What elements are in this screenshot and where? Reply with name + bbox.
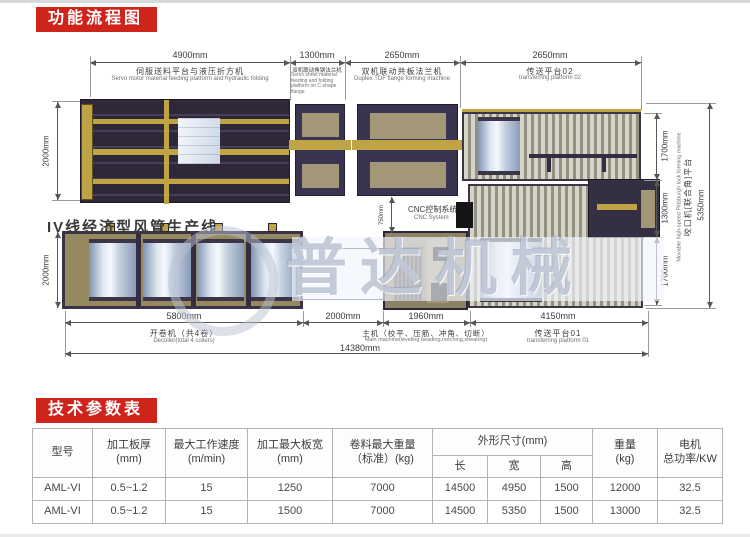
table-cell: AML-VI xyxy=(33,501,93,524)
dim-14380-label: 14380mm xyxy=(340,343,380,353)
table-cell: 7000 xyxy=(333,478,433,501)
header-width: 加工最大板宽 (mm) xyxy=(248,429,333,478)
roller-bar xyxy=(289,140,351,150)
dim-1300-right-label: 1300mm xyxy=(661,192,670,223)
cnc-system-en: CNC System xyxy=(414,215,449,221)
table-cell: 13000 xyxy=(593,501,658,524)
dim-4900-label: 4900mm xyxy=(172,50,207,60)
flow-chart-banner: 功能流程图 xyxy=(36,7,157,32)
block xyxy=(302,113,339,137)
dim-2000-gap-label: 2000mm xyxy=(325,311,360,321)
dim-2650a-label: 2650mm xyxy=(384,50,419,60)
angle-flange-en: Servo sheet material feeding and folding… xyxy=(291,73,343,95)
dim-1300-label: 1300mm xyxy=(299,50,334,60)
ext-line xyxy=(641,56,642,110)
cnc-control-box xyxy=(456,202,473,228)
post xyxy=(164,100,169,204)
header-model: 型号 xyxy=(33,429,93,478)
header-speed: 最大工作速度 (m/min) xyxy=(166,429,248,478)
dim-line-750 xyxy=(391,197,392,233)
ext-line xyxy=(646,103,716,104)
dim-2650b-label: 2650mm xyxy=(532,50,567,60)
block xyxy=(370,162,446,188)
angle-flange-machine xyxy=(295,104,345,196)
tdf-machine-en: Duplex TDF flange forming machine xyxy=(354,76,450,82)
dim-1960-label: 1960mm xyxy=(408,311,443,321)
roller-bar xyxy=(352,140,463,150)
platform02-en: transferring platform 02 xyxy=(519,75,581,81)
watermark-logo-ring xyxy=(168,226,278,336)
dim-line-1300-right xyxy=(656,180,657,237)
guide-rail xyxy=(529,154,637,158)
table-cell: 1500 xyxy=(541,501,593,524)
dim-750-label: 750mm xyxy=(379,205,385,225)
platform01-en: transferring platform 01 xyxy=(527,338,589,344)
feeding-platform-en: Servo motor material feeding platform an… xyxy=(111,76,268,82)
table-cell: AML-VI xyxy=(33,478,93,501)
tdf-flange-machine xyxy=(357,104,458,196)
ext-line xyxy=(90,56,91,97)
dim-5350-label: 5350mm xyxy=(697,189,706,220)
transfer-platform-02 xyxy=(462,112,641,181)
ext-line xyxy=(52,200,82,201)
specs-table: 型号 加工板厚 (mm) 最大工作速度 (m/min) 加工最大板宽 (mm) … xyxy=(32,428,723,524)
guide-stub xyxy=(547,158,551,172)
dim-1700-top-label: 1700mm xyxy=(661,130,670,161)
divider-post xyxy=(136,234,141,306)
header-length: 长 xyxy=(433,456,488,478)
rail xyxy=(597,204,637,210)
dim-line-1300 xyxy=(290,62,345,63)
table-cell: 1500 xyxy=(248,501,333,524)
dim-line-2650b xyxy=(460,62,641,63)
table-cell: 4950 xyxy=(488,478,541,501)
table-cell: 12000 xyxy=(593,478,658,501)
table-cell: 32.5 xyxy=(658,501,723,524)
ext-line xyxy=(52,101,82,102)
dim-line-4150 xyxy=(470,322,648,323)
pittsburgh-machine xyxy=(588,179,660,238)
dim-2000-top-label: 2000mm xyxy=(42,135,51,166)
dim-line-5350 xyxy=(709,103,710,308)
ext-line xyxy=(644,305,662,306)
table-row: AML-VI 0.5~1.2 15 1250 7000 14500 4950 1… xyxy=(33,478,723,501)
ext-line xyxy=(648,311,649,357)
brochure-page: 功能流程图 4900mm 伺服送料平台与液压折方机 Servo motor ma… xyxy=(0,0,750,537)
metal-sheet xyxy=(178,118,220,164)
dim-2000-bottom-label: 2000mm xyxy=(42,254,51,285)
dim-line-2000-bottom xyxy=(57,232,58,308)
table-cell: 1250 xyxy=(248,478,333,501)
table-cell: 14500 xyxy=(433,501,488,524)
header-coil-weight: 卷料最大重量 （标准）(kg) xyxy=(333,429,433,478)
feeding-platform-cap xyxy=(81,104,93,200)
table-cell: 0.5~1.2 xyxy=(93,501,166,524)
dim-line-1700-top xyxy=(656,113,657,180)
tech-params-banner: 技术参数表 xyxy=(36,398,157,423)
dim-line-1960 xyxy=(383,322,470,323)
block xyxy=(302,164,339,188)
dim-line-2650a xyxy=(345,62,460,63)
dim-line-4900 xyxy=(90,62,290,63)
block xyxy=(370,113,446,139)
table-cell: 15 xyxy=(166,478,248,501)
table-cell: 1500 xyxy=(541,478,593,501)
dim-line-2000-top xyxy=(57,102,58,200)
header-weight: 重量 (kg) xyxy=(593,429,658,478)
dim-line-5800 xyxy=(65,322,303,323)
header-height: 高 xyxy=(541,456,593,478)
header-w: 宽 xyxy=(488,456,541,478)
dim-4150-label: 4150mm xyxy=(540,311,575,321)
ext-line xyxy=(646,308,716,309)
main-machine-en: Main machine(leveling beading,notching,s… xyxy=(365,337,488,343)
coil xyxy=(89,239,136,301)
dim-line-14380 xyxy=(65,353,648,354)
coil-pin xyxy=(268,223,277,232)
ext-line xyxy=(460,56,461,108)
table-cell: 14500 xyxy=(433,478,488,501)
table-cell: 32.5 xyxy=(658,478,723,501)
watermark-text: 普达机械 xyxy=(285,236,585,301)
table-cell: 5350 xyxy=(488,501,541,524)
decoiler-en: Decoiler(total 4 coilers) xyxy=(153,338,214,344)
table-row: AML-VI 0.5~1.2 15 1500 7000 14500 5350 1… xyxy=(33,501,723,524)
table-cell: 7000 xyxy=(333,501,433,524)
pittsburgh-label: Movable high-speed Pittsburgh lock formi… xyxy=(677,132,694,261)
rail xyxy=(93,179,289,184)
page-top-edge xyxy=(0,0,750,3)
guide-stub xyxy=(602,158,606,172)
pittsburgh-label-cn: 咬口机[联合角]平台 xyxy=(683,132,694,261)
cnc-system-cn: CNC控制系统 xyxy=(408,204,457,215)
header-power: 电机 总功率/KW xyxy=(658,429,723,478)
table-cell: 15 xyxy=(166,501,248,524)
block xyxy=(641,190,655,228)
table-cell: 0.5~1.2 xyxy=(93,478,166,501)
dim-line-2000-gap xyxy=(303,322,383,323)
header-dimensions: 外形尺寸(mm) xyxy=(433,429,593,456)
ext-line xyxy=(345,56,346,100)
header-thickness: 加工板厚 (mm) xyxy=(93,429,166,478)
feeding-platform-machine xyxy=(80,99,290,203)
coil xyxy=(478,117,520,175)
